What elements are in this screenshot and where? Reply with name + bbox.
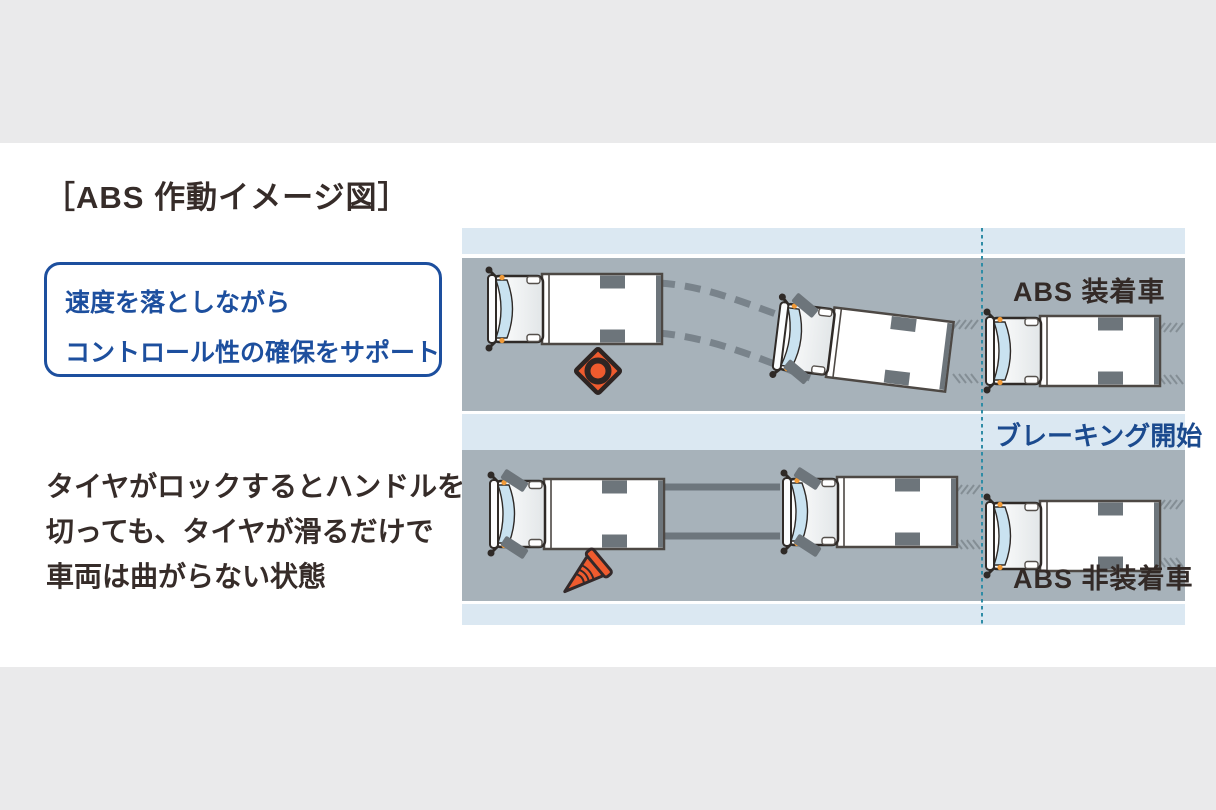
no-abs-description: タイヤがロックするとハンドルを 切っても、タイヤが滑るだけで 車両は曲がらない状…: [46, 464, 465, 599]
truck-noabs-steering: [781, 467, 958, 558]
braking-start-label: ブレーキング開始: [995, 416, 1202, 453]
abs-diagram: ABS 装着車 ブレーキング開始 ABS 非装着車: [462, 228, 1185, 625]
abs-benefit-callout: 速度を落としながら コントロール性の確保をサポート: [44, 262, 442, 377]
truck-noabs-slid: [488, 469, 665, 560]
page: ［ABS 作動イメージ図］ 速度を落としながら コントロール性の確保をサポート …: [0, 0, 1216, 810]
callout-line-2: コントロール性の確保をサポート: [65, 328, 439, 378]
truck-abs-braking-start: [984, 309, 1161, 394]
top-gray-band: [0, 0, 1216, 143]
bottom-lightblue-band: [462, 604, 1185, 625]
abs-equipped-label: ABS 装着車: [1013, 270, 1166, 309]
callout-line-1: 速度を落としながら: [65, 278, 439, 328]
truck-abs-recovered: [486, 267, 663, 352]
top-lightblue-band: [462, 228, 1185, 254]
description-line-3: 車両は曲がらない状態: [46, 554, 465, 599]
page-title: ［ABS 作動イメージ図］: [44, 172, 409, 217]
description-line-2: 切っても、タイヤが滑るだけで: [46, 509, 465, 554]
description-line-1: タイヤがロックするとハンドルを: [46, 464, 465, 509]
bottom-gray-band: [0, 667, 1216, 810]
abs-not-equipped-label: ABS 非装着車: [1013, 557, 1194, 596]
